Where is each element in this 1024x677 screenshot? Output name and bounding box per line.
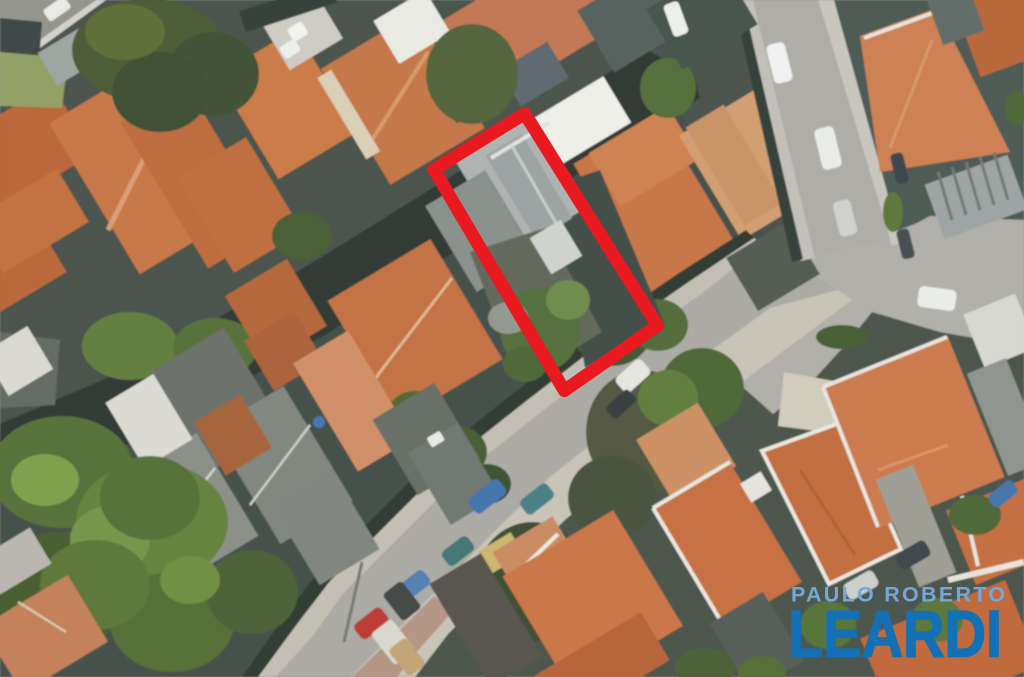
svg-text:LEARDI: LEARDI	[788, 598, 1002, 671]
